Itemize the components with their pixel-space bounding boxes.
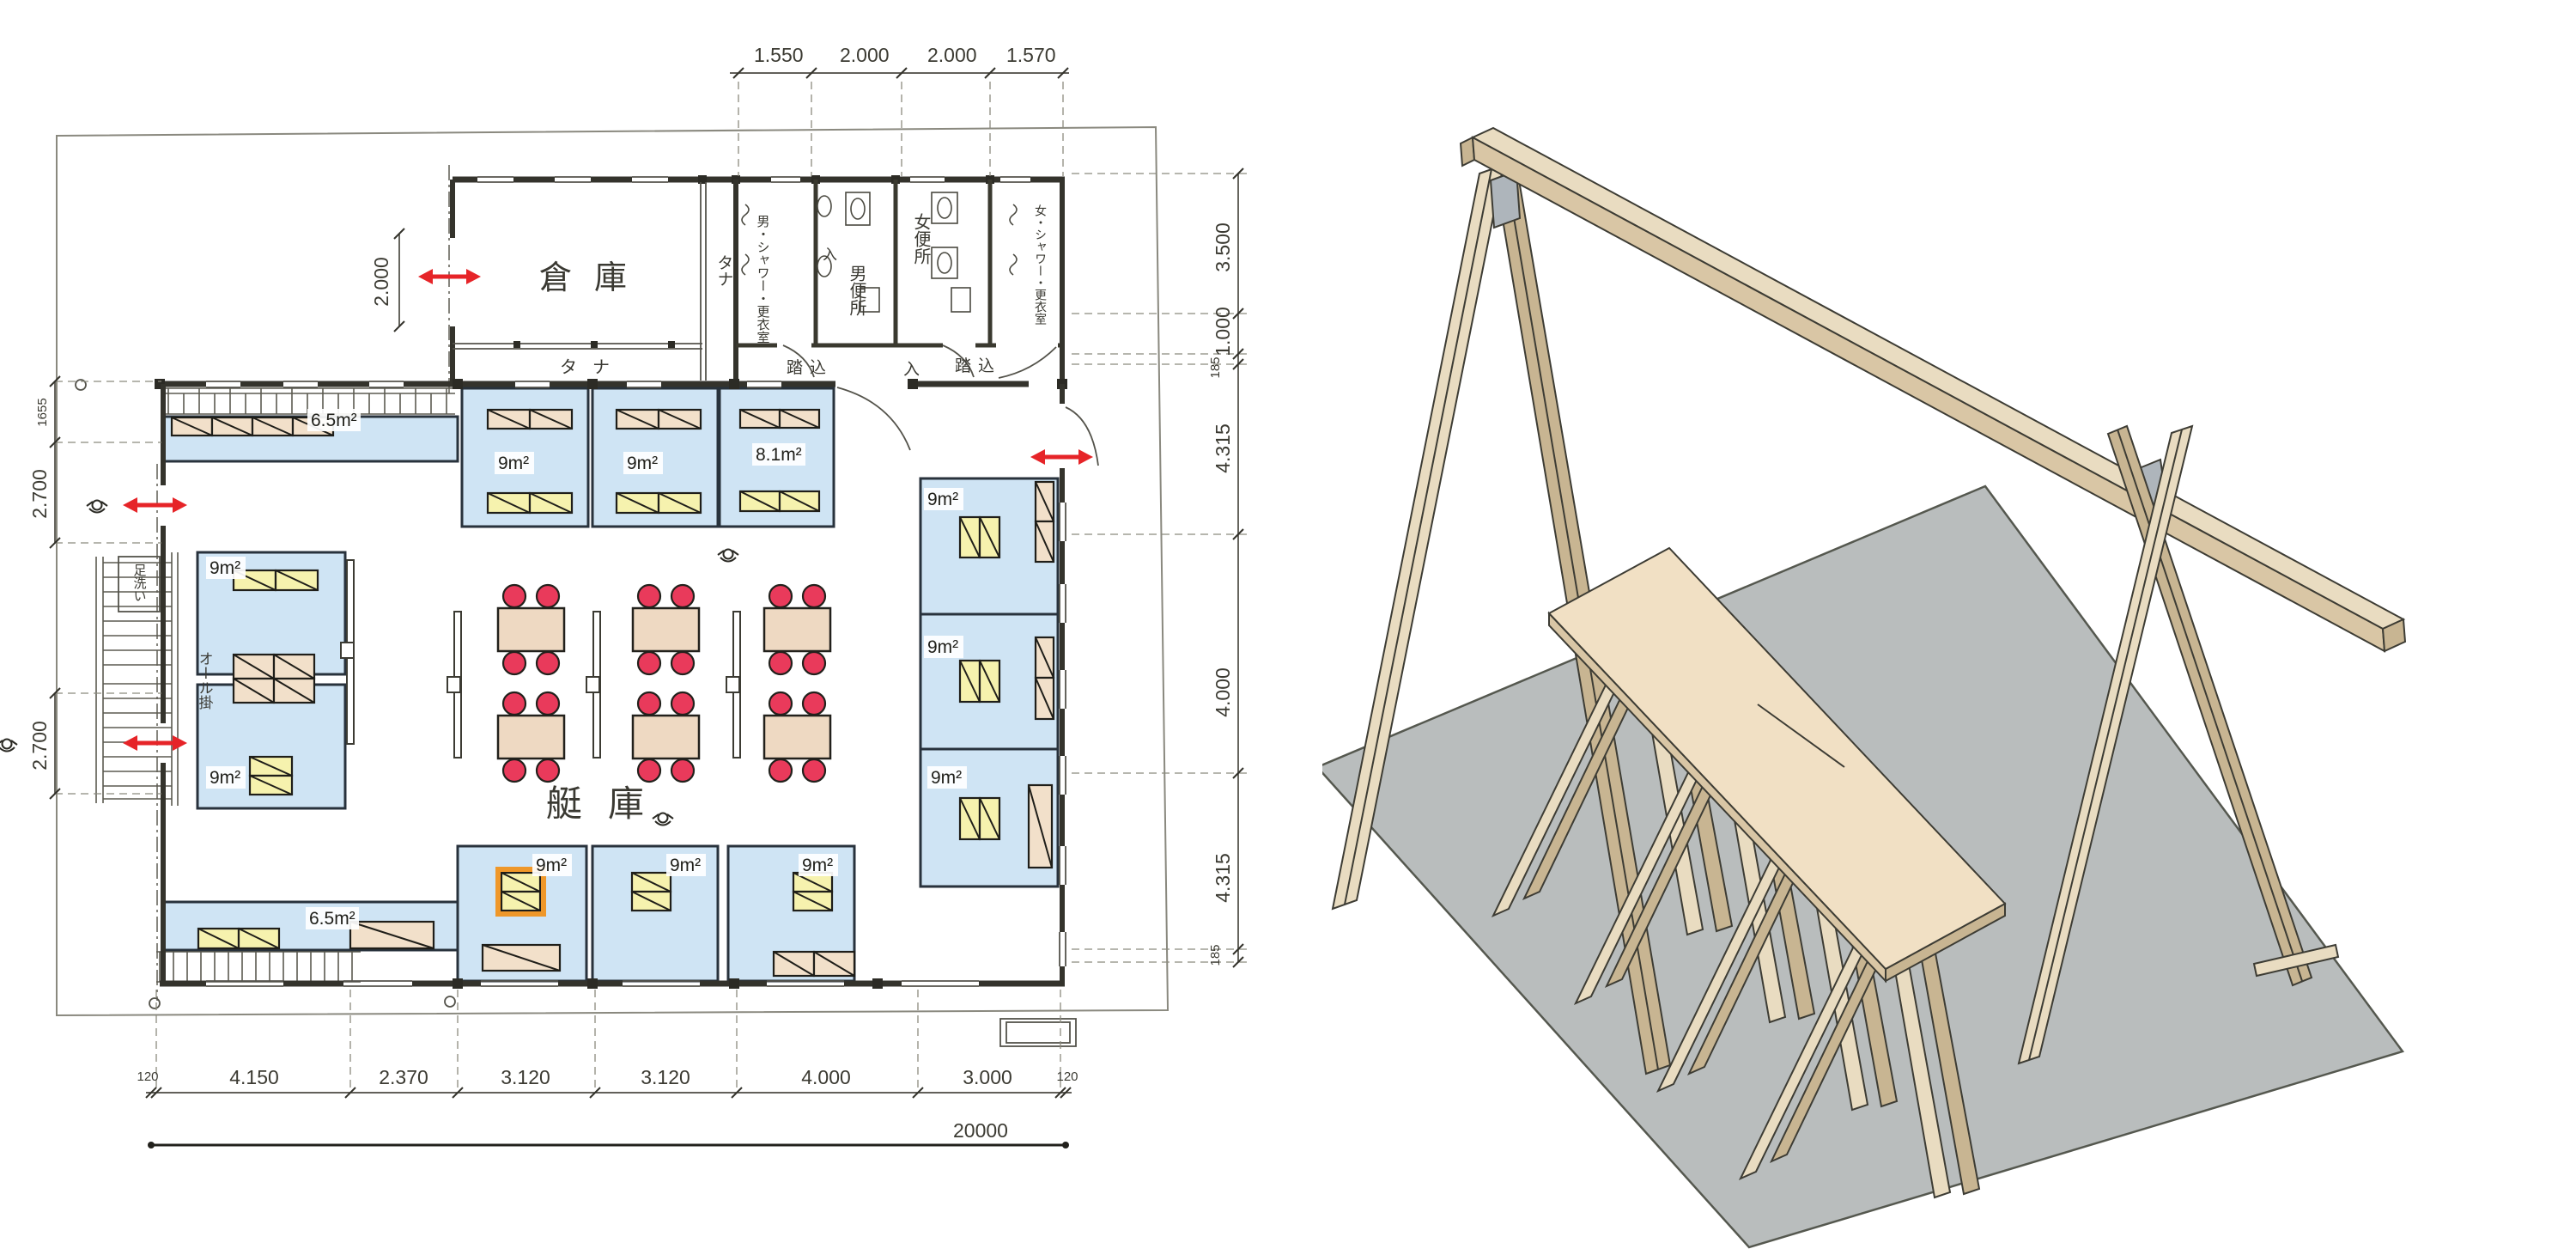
dim-top-3: 2.000 [927,44,977,66]
label-men-shower: 男・シャワー・更衣室 [756,215,770,344]
table-group [633,692,699,782]
area-9: 9m² [498,454,529,473]
table-group [633,585,699,674]
dim-right-7: 185 [1208,944,1223,966]
area-8_1: 8.1m² [756,445,802,465]
label-enter-1: 入 [823,247,837,263]
area-9: 9m² [931,768,962,788]
dim-left-3: 2.700 [28,721,51,771]
label-oar-rack: オール掛 [197,651,214,710]
dining-tables [498,585,830,782]
label-entry-step-1: 踏込 [787,358,833,377]
dim-right-5: 4.000 [1212,667,1234,717]
area-9: 9m² [627,454,658,473]
axonometric-sketch [1322,0,2576,1249]
person-figures [0,501,738,826]
table-group [764,692,830,782]
label-enter-2: 入 [903,361,920,379]
dim-right-2: 1.000 [1212,307,1234,356]
label-women-shower: 女・シャワー・更衣室 [1034,204,1048,325]
dim-bottom-7: 3.000 [963,1066,1012,1088]
dim-bottom-5: 3.120 [641,1066,690,1088]
dim-total: 20000 [953,1119,1008,1142]
dim-bottom-3: 2.370 [379,1066,428,1088]
label-entry-step-2: 踏込 [955,356,1001,375]
label-shelf-v: タナ [715,254,733,287]
right-entry-arrow [1030,449,1093,465]
dim-right-3: 185 [1208,356,1223,378]
area-6_5-top: 6.5m² [311,411,357,430]
dim-bottom-6: 4.000 [801,1066,851,1088]
dim-bottom-8: 120 [1056,1069,1078,1084]
dim-right-1: 3.500 [1212,222,1234,272]
left-entry-arrow-1 [123,497,187,513]
table-group [498,585,564,674]
dim-bottom-2: 4.150 [229,1066,279,1088]
area-9: 9m² [536,856,567,875]
dim-top-1: 1.550 [754,44,804,66]
label-foot-wash: 足洗い [132,564,147,602]
dim-storage-door: 2.000 [370,257,392,307]
dim-top-2: 2.000 [840,44,890,66]
area-9: 9m² [927,637,958,657]
dim-left-1: 1655 [35,398,50,426]
dim-bottom-4: 3.120 [501,1066,550,1088]
dim-right-4: 4.315 [1212,423,1234,473]
area-9: 9m² [802,856,833,875]
label-boat-hall: 艇庫 [546,783,670,824]
architectural-drawing-sheet: 1.550 2.000 2.000 1.570 3.500 1.000 185 … [0,0,2576,1249]
area-9: 9m² [210,768,240,788]
label-men-toilet: 男便所 [847,265,866,316]
area-6_5-bottom: 6.5m² [309,909,355,929]
dim-left-2: 2.700 [28,469,51,519]
label-storage: 倉庫 [539,260,649,296]
area-9: 9m² [210,558,240,578]
dim-right-6: 4.315 [1212,853,1234,903]
label-women-toilet: 女便所 [911,213,931,265]
area-9: 9m² [670,856,701,875]
dim-top-4: 1.570 [1006,44,1056,66]
table-group [498,692,564,782]
floor-plan: 1.550 2.000 2.000 1.570 3.500 1.000 185 … [0,0,1322,1249]
dim-bottom-1: 120 [137,1069,158,1084]
label-shelf-h: タナ [560,357,625,377]
table-group [764,585,830,674]
area-9: 9m² [927,490,958,509]
